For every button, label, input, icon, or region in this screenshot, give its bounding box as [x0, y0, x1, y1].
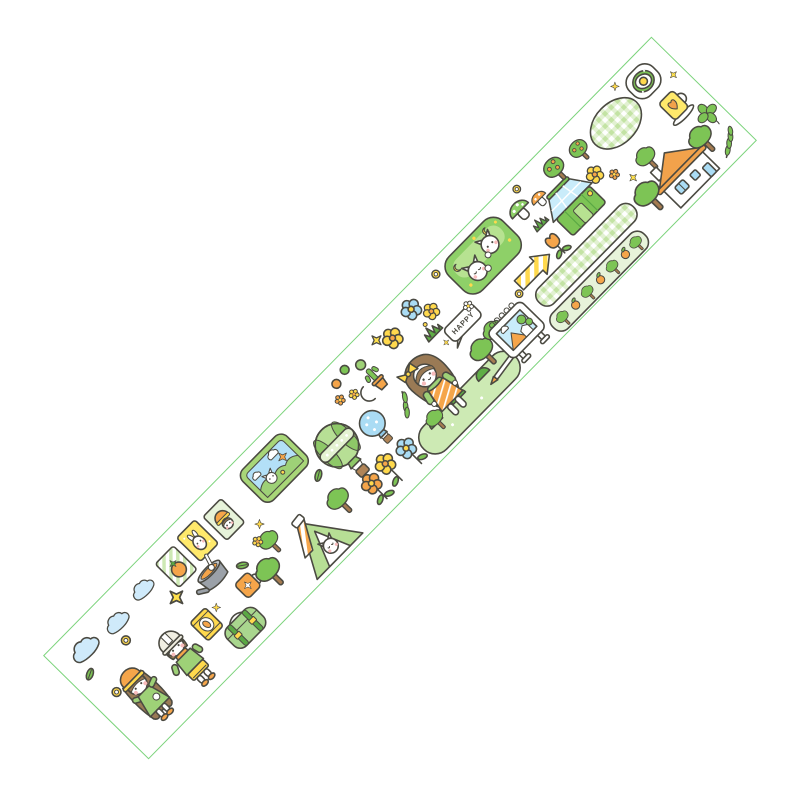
leaf-branch: [712, 124, 746, 158]
flower: [397, 295, 425, 323]
star-icon: [626, 171, 639, 184]
landscape-frame: [237, 430, 312, 505]
heart-mug: [656, 86, 697, 127]
leaf-icon: [236, 561, 249, 569]
tape-illustration: HAPPY: [44, 38, 755, 758]
cloud-icon: [129, 575, 157, 603]
grass-tuft: [530, 213, 549, 232]
ball-icon: [354, 358, 368, 372]
star-icon: [164, 585, 189, 610]
tree-icon: [322, 483, 359, 520]
sparkle-icon: [255, 519, 265, 529]
coin-icon: [120, 634, 133, 647]
moon-icon: [357, 387, 375, 405]
mushroom: [506, 196, 536, 226]
grass-tuft: [417, 316, 443, 342]
camping-bag: [219, 601, 270, 652]
flower: [420, 300, 443, 323]
leaf-icon: [85, 668, 95, 681]
leaf-icon: [314, 469, 323, 482]
ball-icon: [338, 364, 351, 377]
product-photo: HAPPY: [0, 0, 800, 800]
cloud-icon: [102, 607, 132, 637]
hot-air-balloon-blue: [354, 405, 399, 450]
tiny-flower: [607, 167, 621, 181]
tiny-flower: [333, 393, 347, 407]
coin-icon: [430, 269, 441, 280]
fried-egg-plate: [621, 59, 666, 104]
cat-bed-hedge: [439, 212, 527, 300]
sparkle-icon: [611, 82, 620, 91]
snack-bag: [190, 608, 224, 641]
coin-icon: [110, 686, 123, 699]
tiny-flower: [347, 387, 361, 401]
flower: [378, 323, 406, 351]
ball-icon: [330, 378, 343, 391]
sparkle-icon: [212, 603, 221, 612]
cloud-icon: [67, 631, 102, 666]
coin-icon: [511, 184, 522, 195]
tent-with-cat: [275, 492, 363, 580]
star-icon: [667, 69, 679, 81]
fruit-tree-icon: [566, 136, 595, 165]
washi-tape-strip: HAPPY: [43, 37, 757, 760]
